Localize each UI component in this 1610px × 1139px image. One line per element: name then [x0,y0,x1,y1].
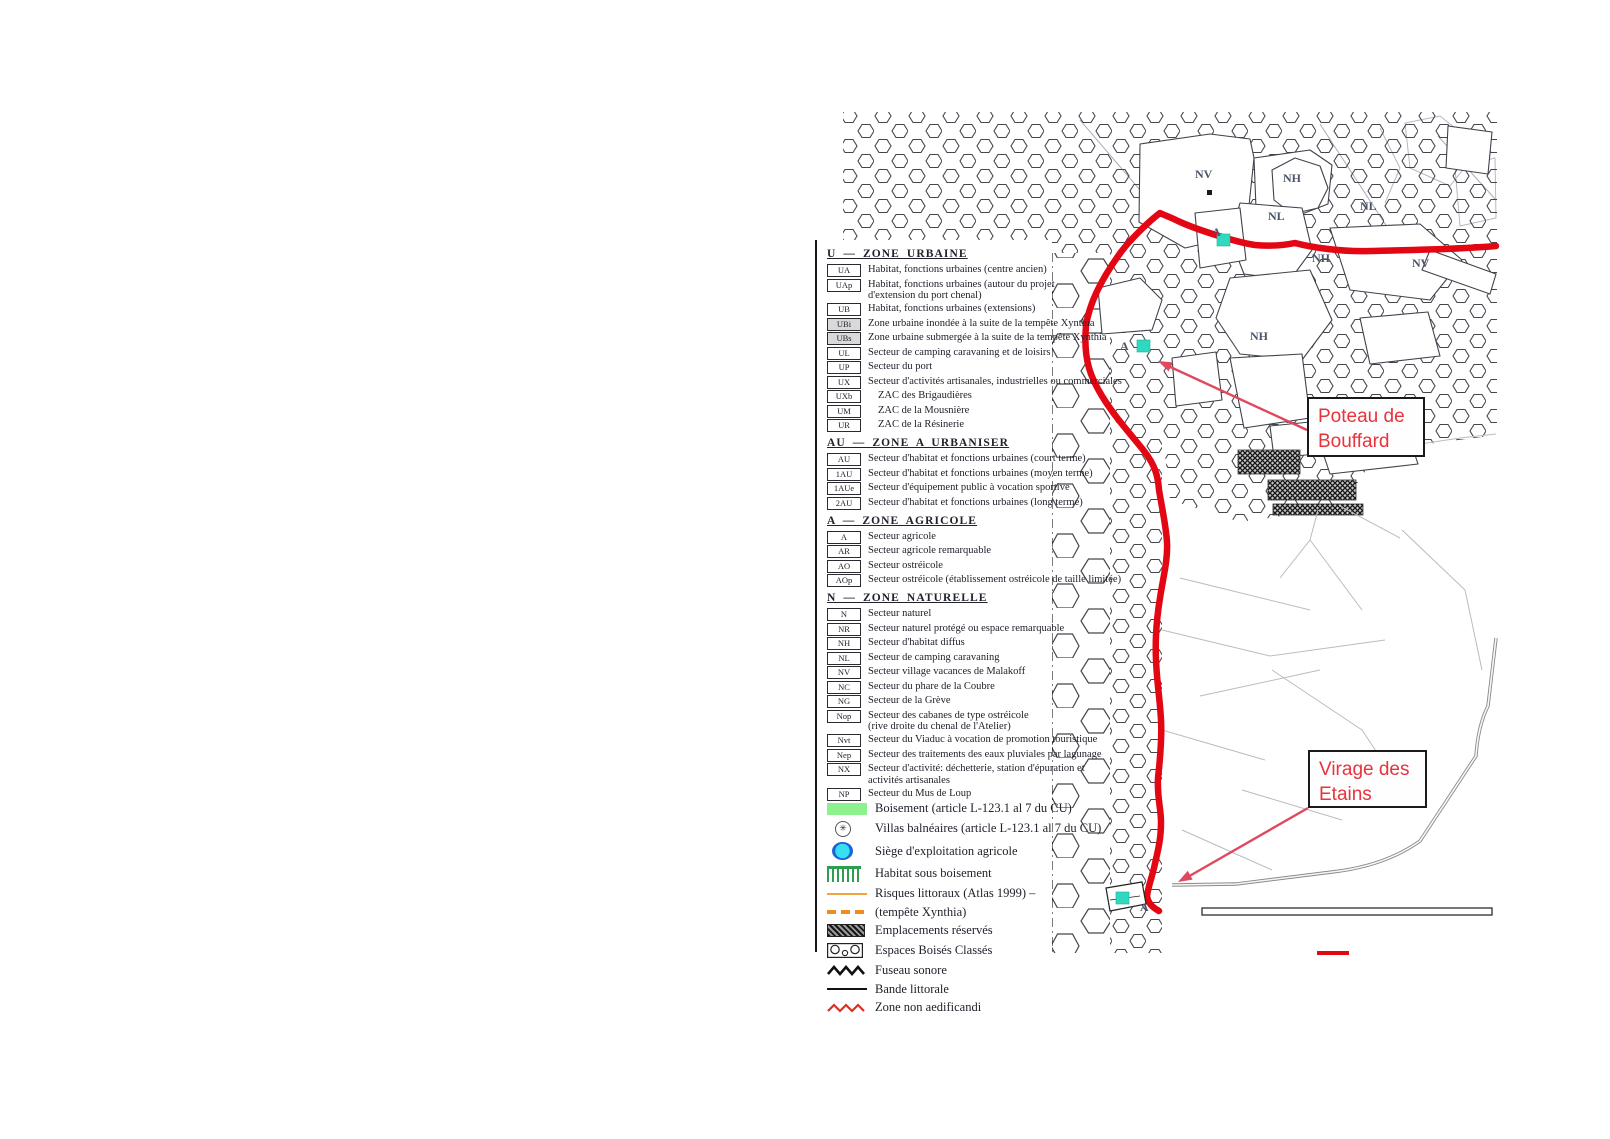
legend-code-badge: UM [827,405,861,418]
map-zone-label: A [1120,339,1129,353]
legend-code-badge: NH [827,637,861,650]
legend-code-badge: UX [827,376,861,389]
legend-symbol-label: Emplacements réservés [875,924,993,937]
siege-exploitation-agricole-icon [832,842,853,860]
legend-item-label: Secteur d'habitat et fonctions urbaines … [868,468,1093,480]
symbol-cell [827,988,875,990]
symbol-cell [827,803,875,815]
legend-symbol-label: (tempête Xynthia) [875,906,966,919]
legend-code-badge: N [827,608,861,621]
legend-item-NG: NGSecteur de la Grève [827,695,1052,708]
map-zone-label: NL [1360,199,1377,213]
legend-item-1AUe: 1AUeSecteur d'équipement public à vocati… [827,482,1052,495]
legend-item-label: Secteur d'habitat diffus [868,637,965,649]
legend-code-badge: UBi [827,318,861,331]
legend-item-label: Secteur ostréicole [868,560,943,572]
legend-item-NX: NXSecteur d'activité: déchetterie, stati… [827,763,1052,786]
legend-code-badge: UA [827,264,861,277]
legend-code-badge: UXb [827,390,861,403]
symbol-cell [827,866,875,882]
legend-item-NL: NLSecteur de camping caravaning [827,652,1052,665]
legend-code-badge: Nep [827,749,861,762]
legend-item-UP: UPSecteur du port [827,361,1052,374]
symbol-cell [827,1002,875,1014]
legend-item-label: Secteur d'activités artisanales, industr… [868,376,1122,388]
legend-item-AOp: AOpSecteur ostréicole (établissement ost… [827,574,1052,587]
legend-code-badge: Nvt [827,734,861,747]
legend-item-label: Secteur d'habitat et fonctions urbaines … [868,497,1083,509]
legend-item-label: Secteur du Viaduc à vocation de promotio… [868,734,1097,746]
legend-code-badge: A [827,531,861,544]
legend-item-label: Secteur village vacances de Malakoff [868,666,1025,678]
legend-item-UBi: UBiZone urbaine inondée à la suite de la… [827,318,1052,331]
legend-symbol-boisement: Boisement (article L-123.1 al 7 du CU) [827,802,1052,815]
legend-code-badge: AO [827,560,861,573]
legend-item-label: Zone urbaine inondée à la suite de la te… [868,318,1095,330]
legend-section-header: N — ZONE NATURELLE [827,592,1052,604]
legend-item-label: Secteur naturel [868,608,931,620]
legend-item-UX: UXSecteur d'activités artisanales, indus… [827,376,1052,389]
legend-item-label: Secteur d'activité: déchetterie, station… [868,763,1085,786]
legend-item-label: Secteur du port [868,361,932,373]
legend-item-N: NSecteur naturel [827,608,1052,621]
legend-symbol-znae: Zone non aedificandi [827,1001,1052,1014]
legend-item-A: ASecteur agricole [827,531,1052,544]
legend-item-label: Secteur ostréicole (établissement ostréi… [868,574,1121,586]
map-zone-label: NV [1195,167,1213,181]
legend-code-badge: 2AU [827,497,861,510]
legend-item-label: Secteur de la Grève [868,695,951,707]
legend-item-AU: AUSecteur d'habitat et fonctions urbaine… [827,453,1052,466]
legend-code-badge: 1AUe [827,482,861,495]
legend-item-label: Secteur agricole [868,531,936,543]
villas-balneaires-icon: ✳ [835,821,851,837]
map-zone-label: NH [1312,251,1331,265]
siege-agricole-marker [1137,340,1150,352]
fuseau-sonore-zigzag-icon [827,963,865,977]
legend-item-AO: AOSecteur ostréicole [827,560,1052,573]
legend-code-badge: UBs [827,332,861,345]
legend-item-Nep: NepSecteur des traitements des eaux pluv… [827,749,1052,762]
legend-symbol-label: Villas balnéaires (article L-123.1 al 7 … [875,822,1101,835]
legend-item-label: Secteur d'équipement public à vocation s… [868,482,1070,494]
legend-item-UBs: UBsZone urbaine submergée à la suite de … [827,332,1052,345]
legend-item-Nvt: NvtSecteur du Viaduc à vocation de promo… [827,734,1052,747]
legend-item-NH: NHSecteur d'habitat diffus [827,637,1052,650]
legend-symbol-habitat: Habitat sous boisement [827,866,1052,882]
legend-symbol-risques: Risques littoraux (Atlas 1999) – [827,887,1052,900]
legend-item-label: Secteur de camping caravaning [868,652,999,664]
legend-item-Nop: NopSecteur des cabanes de type ostréicol… [827,710,1052,733]
legend-item-label: ZAC de la Résinerie [868,419,964,431]
legend-item-UB: UBHabitat, fonctions urbaines (extension… [827,303,1052,316]
legend-item-label: Secteur de camping caravaning et de lois… [868,347,1051,359]
legend-section-header: U — ZONE URBAINE [827,248,1052,260]
map-point-marker [1207,190,1212,195]
symbol-cell [827,924,875,937]
map-zone-label: A [1140,900,1149,914]
legend-item-label: Secteur des cabanes de type ostréicole (… [868,710,1029,733]
legend-item-2AU: 2AUSecteur d'habitat et fonctions urbain… [827,497,1052,510]
legend-item-label: Habitat, fonctions urbaines (autour du p… [868,279,1055,302]
legend-item-label: Secteur agricole remarquable [868,545,991,557]
legend-symbol-xynthia: (tempête Xynthia) [827,906,1052,919]
legend-symbol-fuseau: Fuseau sonore [827,963,1052,977]
legend-item-NR: NRSecteur naturel protégé ou espace rema… [827,623,1052,636]
map-zone-label: NV [1412,256,1430,270]
legend-code-badge: 1AU [827,468,861,481]
legend-code-badge: NL [827,652,861,665]
legend-code-badge: UAp [827,279,861,292]
legend-code-badge: NG [827,695,861,708]
legend-code-badge: NC [827,681,861,694]
map-zone-label: NH [1283,171,1302,185]
legend-code-badge: AOp [827,574,861,587]
legend-item-label: Secteur du Mus de Loup [868,788,971,800]
siege-agricole-marker [1116,892,1129,904]
legend-item-UAp: UApHabitat, fonctions urbaines (autour d… [827,279,1052,302]
espaces-boises-classes-swatch-icon [827,943,863,958]
annotation-poteau-de-bouffard: Poteau de Bouffard [1307,397,1425,457]
legend-symbol-label: Bande littorale [875,983,949,996]
legend-symbol-bande: Bande littorale [827,983,1052,996]
legend-code-badge: AU [827,453,861,466]
legend-item-UM: UMZAC de la Mousnière [827,405,1052,418]
annotation-virage-des-etains: Virage des Etains [1308,750,1427,808]
legend-symbol-label: Zone non aedificandi [875,1001,981,1014]
symbol-cell [827,910,875,914]
legend-symbol-label: Risques littoraux (Atlas 1999) – [875,887,1035,900]
tempete-xynthia-dashed-line-icon [827,910,867,914]
legend-symbol-label: Espaces Boisés Classés [875,944,992,957]
legend-symbol-label: Boisement (article L-123.1 al 7 du CU) [875,802,1072,815]
legend-item-UL: ULSecteur de camping caravaning et de lo… [827,347,1052,360]
legend-code-badge: UR [827,419,861,432]
map-zone-label: A [1212,225,1221,239]
legend-symbol-emplacements: Emplacements réservés [827,924,1052,937]
legend-code-badge: Nop [827,710,861,723]
legend-symbol-label: Fuseau sonore [875,964,947,977]
legend-symbol-label: Habitat sous boisement [875,867,992,880]
red-dash-mark [1317,951,1349,955]
legend-item-label: Secteur d'habitat et fonctions urbaines … [868,453,1086,465]
legend-section-header: AU — ZONE A URBANISER [827,437,1052,449]
habitat-sous-boisement-icon [827,866,861,882]
legend-item-label: ZAC des Brigaudières [868,390,972,402]
symbol-cell [827,842,875,860]
legend-code-badge: UB [827,303,861,316]
legend-code-badge: NR [827,623,861,636]
legend-code-badge: UP [827,361,861,374]
legend-item-label: Secteur naturel protégé ou espace remarq… [868,623,1064,635]
legend-item-label: ZAC de la Mousnière [868,405,969,417]
legend-code-badge: NX [827,763,861,776]
symbol-cell [827,893,875,895]
legend-code-badge: AR [827,545,861,558]
legend-item-UR: URZAC de la Résinerie [827,419,1052,432]
legend-symbol-villas: ✳Villas balnéaires (article L-123.1 al 7… [827,821,1052,837]
risques-littoraux-line-icon [827,893,867,895]
legend-item-NC: NCSecteur du phare de la Coubre [827,681,1052,694]
legend-item-label: Habitat, fonctions urbaines (centre anci… [868,264,1047,276]
boisement-swatch-icon [827,803,867,815]
legend-symbol-siege: Siège d'exploitation agricole [827,842,1052,860]
legend-item-label: Secteur du phare de la Coubre [868,681,995,693]
legend-code-badge: NV [827,666,861,679]
legend-item-UA: UAHabitat, fonctions urbaines (centre an… [827,264,1052,277]
legend-item-label: Secteur des traitements des eaux pluvial… [868,749,1102,761]
legend-section-header: A — ZONE AGRICOLE [827,515,1052,527]
map-zone-label: NL [1268,209,1285,223]
legend-item-label: Zone urbaine submergée à la suite de la … [868,332,1107,344]
map-legend: U — ZONE URBAINEUAHabitat, fonctions urb… [815,240,1052,952]
map-zone-label: NH [1250,329,1269,343]
scale-bar [1202,908,1492,915]
legend-item-NP: NPSecteur du Mus de Loup [827,788,1052,801]
legend-item-1AU: 1AUSecteur d'habitat et fonctions urbain… [827,468,1052,481]
legend-symbol-ebc: Espaces Boisés Classés [827,943,1052,958]
legend-item-NV: NVSecteur village vacances de Malakoff [827,666,1052,679]
document-page: NVNHNLNLNHNVANHAA U — ZONE URBAINEUAHabi… [0,0,1610,1139]
symbol-cell [827,963,875,977]
emplacements-reserves-swatch-icon [827,924,865,937]
bande-littorale-line-icon [827,988,867,990]
legend-item-AR: ARSecteur agricole remarquable [827,545,1052,558]
legend-item-UXb: UXbZAC des Brigaudières [827,390,1052,403]
zone-non-aedificandi-zigzag-icon [827,1002,865,1014]
symbol-cell: ✳ [827,821,875,837]
symbol-cell [827,943,875,958]
legend-symbol-label: Siège d'exploitation agricole [875,845,1018,858]
legend-code-badge: UL [827,347,861,360]
legend-code-badge: NP [827,788,861,801]
legend-item-label: Habitat, fonctions urbaines (extensions) [868,303,1035,315]
